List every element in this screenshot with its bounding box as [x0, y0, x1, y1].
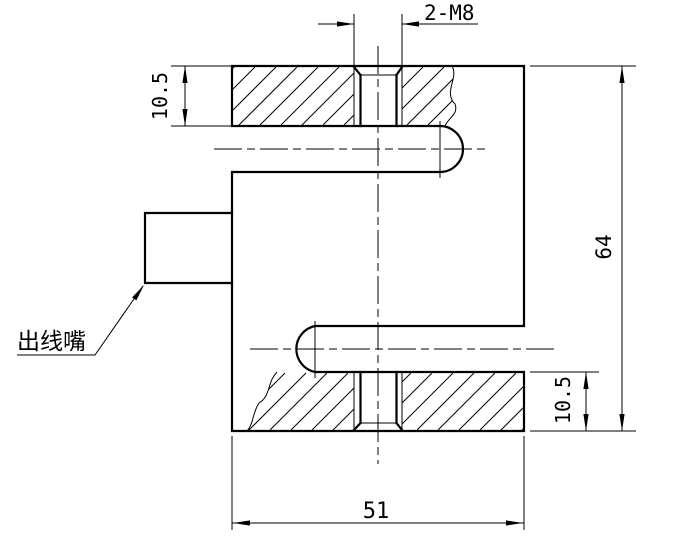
hatch-line	[501, 407, 524, 430]
top-plate-thickness-label: 10.5	[148, 72, 172, 120]
arrowhead	[233, 520, 250, 525]
cable-outlet-callout: 出线嘴	[17, 286, 143, 355]
hatch-line	[246, 373, 264, 391]
overall-width-label: 51	[363, 499, 390, 524]
dimension-thread-callout: 2-M8	[318, 1, 478, 25]
hatch-line	[232, 67, 255, 90]
load-cell-section-view: 2-M8 10.5 64 10.5 51 出线嘴	[0, 0, 676, 538]
hatch-line	[291, 373, 348, 430]
arrowhead	[182, 66, 187, 83]
arrowhead	[583, 414, 588, 431]
arrowhead	[583, 372, 588, 389]
hatch-line	[480, 386, 524, 430]
hatch-line	[417, 373, 474, 430]
hatch-line	[438, 373, 495, 430]
thread-callout-label: 2-M8	[424, 1, 475, 25]
hatch-line	[449, 114, 460, 125]
hatch-line	[428, 93, 460, 125]
cable-outlet-protrusion	[145, 213, 232, 283]
bottom-plate-thickness-label: 10.5	[551, 376, 575, 424]
hatch-line	[459, 373, 516, 430]
arrowhead	[182, 109, 187, 126]
arrowhead	[132, 285, 144, 300]
break-line-top	[445, 66, 456, 126]
hatch-line	[270, 373, 327, 430]
arrowhead	[619, 66, 624, 83]
hatch-line	[249, 373, 306, 430]
dimension-bottom-plate-thickness: 10.5	[530, 372, 599, 431]
hatch-line	[232, 67, 276, 111]
cable-outlet-label: 出线嘴	[17, 329, 86, 355]
arrowhead	[619, 414, 624, 431]
hatch-line	[396, 373, 453, 430]
arrowhead	[402, 21, 419, 26]
break-line-bottom	[247, 372, 277, 431]
arrowhead	[506, 520, 523, 525]
hatch-region-top-block	[232, 67, 460, 125]
arrowhead	[337, 21, 354, 26]
dimension-top-plate-thickness: 10.5	[148, 66, 232, 126]
technical-drawing-canvas: 2-M8 10.5 64 10.5 51 出线嘴	[0, 0, 676, 538]
dimension-total-height: 64	[530, 66, 636, 431]
total-height-label: 64	[592, 234, 616, 259]
hatch-line	[246, 373, 285, 412]
